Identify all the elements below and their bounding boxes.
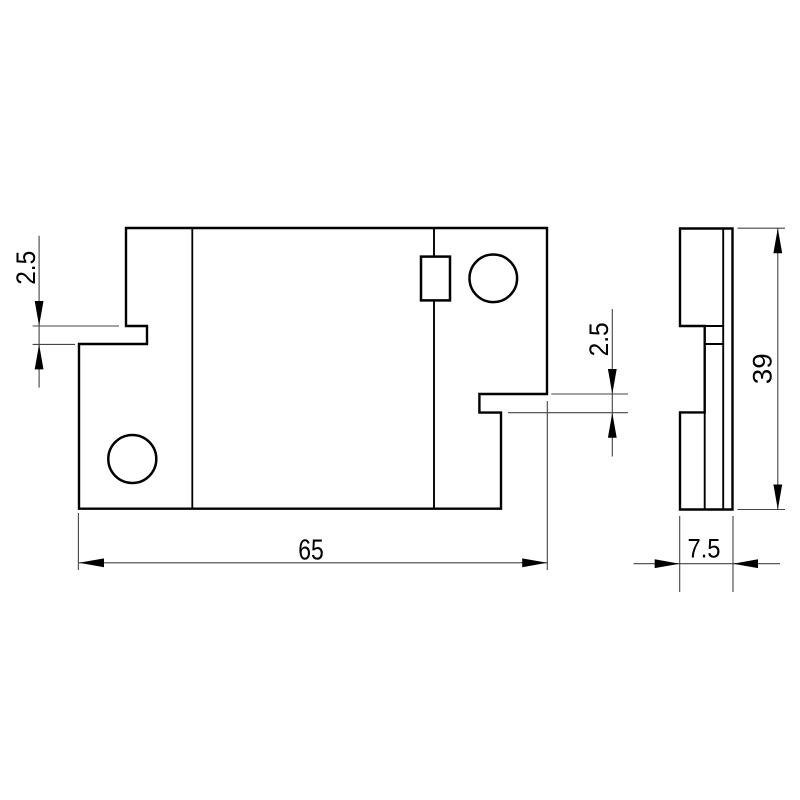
svg-text:2.5: 2.5	[584, 322, 614, 356]
svg-text:2.5: 2.5	[11, 251, 41, 285]
svg-text:65: 65	[298, 534, 324, 566]
svg-text:39: 39	[747, 353, 777, 384]
svg-text:7.5: 7.5	[688, 533, 721, 563]
